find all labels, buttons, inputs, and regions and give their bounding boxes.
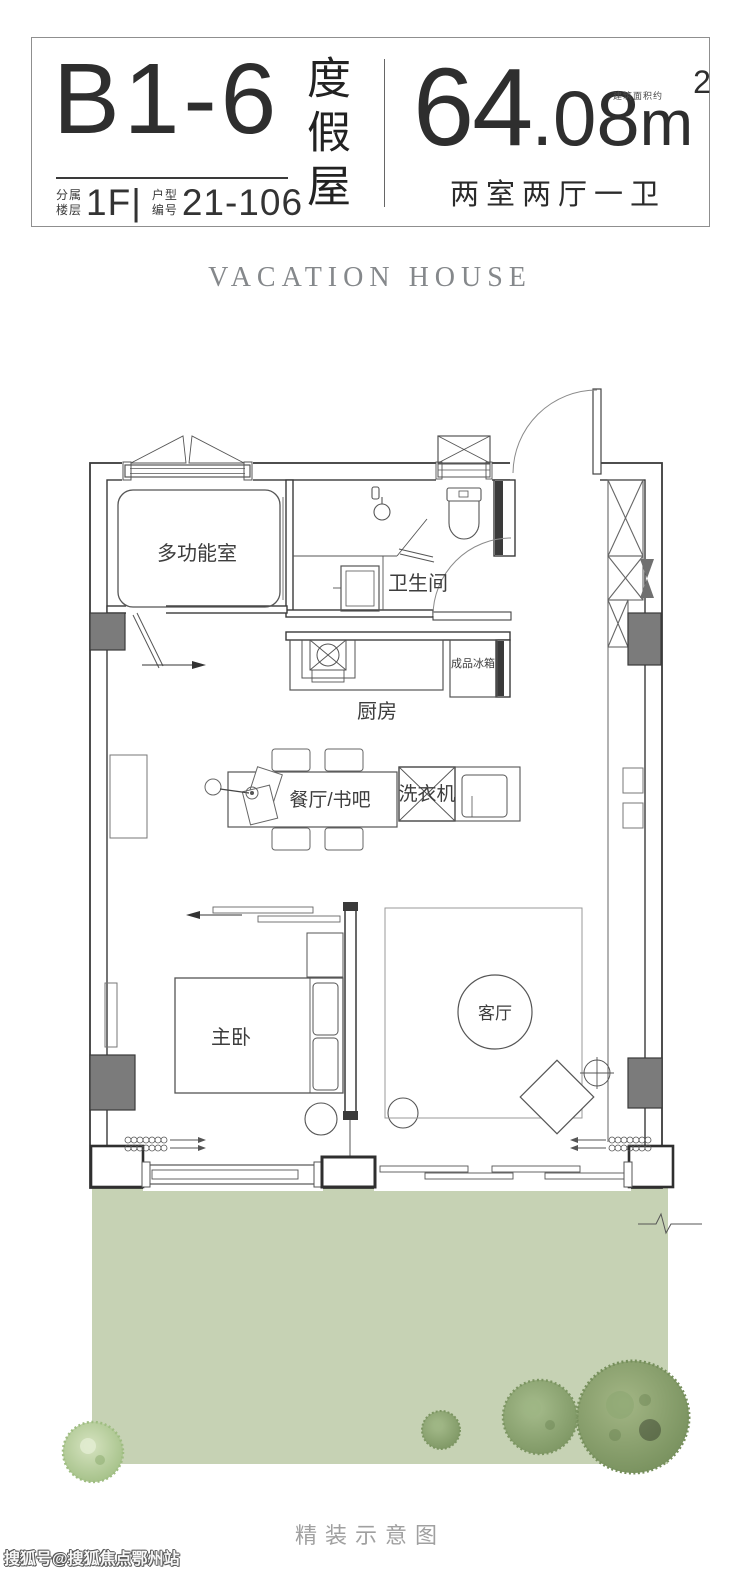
unit-number-label: 户型 编号 (152, 188, 178, 217)
room-label-bathroom: 卫生间 (388, 572, 448, 595)
floorplan-svg: 多功能室 卫生间 厨房 成品冰箱 餐厅/书吧 洗衣机 主卧 客厅 (0, 0, 740, 1578)
window-top-left (123, 436, 252, 480)
room-label-kitchen: 厨房 (357, 700, 397, 723)
tree-large (577, 1361, 689, 1473)
room-label-washer: 洗衣机 (398, 783, 455, 805)
room-label-multi-function: 多功能室 (157, 542, 237, 565)
unit-number-value: 21-106 (182, 184, 303, 221)
header-divider (384, 59, 385, 207)
room-label-master-bedroom: 主卧 (211, 1026, 251, 1049)
tree-medium (503, 1380, 577, 1454)
room-label-living: 客厅 (478, 1004, 512, 1023)
watermark: 搜狐号@搜狐焦点鄂州站 (4, 1545, 180, 1569)
area-superscript: 2 (693, 64, 711, 101)
room-label-dining: 餐厅/书吧 (289, 789, 370, 811)
tree-light (63, 1422, 123, 1482)
radiator-left (125, 1137, 206, 1151)
unit-title-vertical: 度假屋 (302, 55, 346, 217)
structural-columns (90, 613, 662, 1110)
floor-info-row: 分属 楼层 1F| 户型 编号 21-106 (56, 184, 313, 221)
unit-code: B1-6 (53, 49, 280, 149)
subtitle: VACATION HOUSE (0, 262, 740, 294)
area-note: 建筑面积约 (613, 89, 663, 102)
bottom-center-column (322, 1157, 375, 1187)
unit-code-underline (56, 177, 288, 179)
bedroom-furniture (105, 907, 418, 1135)
floor-label: 分属 楼层 (56, 188, 82, 217)
radiator-right (570, 1137, 651, 1151)
room-label-fridge: 成品冰箱 (451, 656, 495, 670)
header-box: B1-6 分属 楼层 1F| 户型 编号 21-106 度假屋 64.08m2 … (31, 37, 710, 227)
layout-type: 两室两厅一卫 (450, 171, 666, 213)
area-int: 64 (413, 53, 531, 163)
sliding-partition (343, 902, 358, 1158)
duct-zone (608, 480, 654, 1142)
floor-value: 1F| (86, 184, 142, 221)
mfr-door-opening (126, 604, 166, 615)
floorplan-page: 多功能室 卫生间 厨房 成品冰箱 餐厅/书吧 洗衣机 主卧 客厅 B1-6 分属… (0, 0, 740, 1578)
bathroom-fixtures (293, 487, 481, 611)
tree-small (422, 1411, 460, 1449)
area-value: 64.08m2 (413, 53, 711, 163)
